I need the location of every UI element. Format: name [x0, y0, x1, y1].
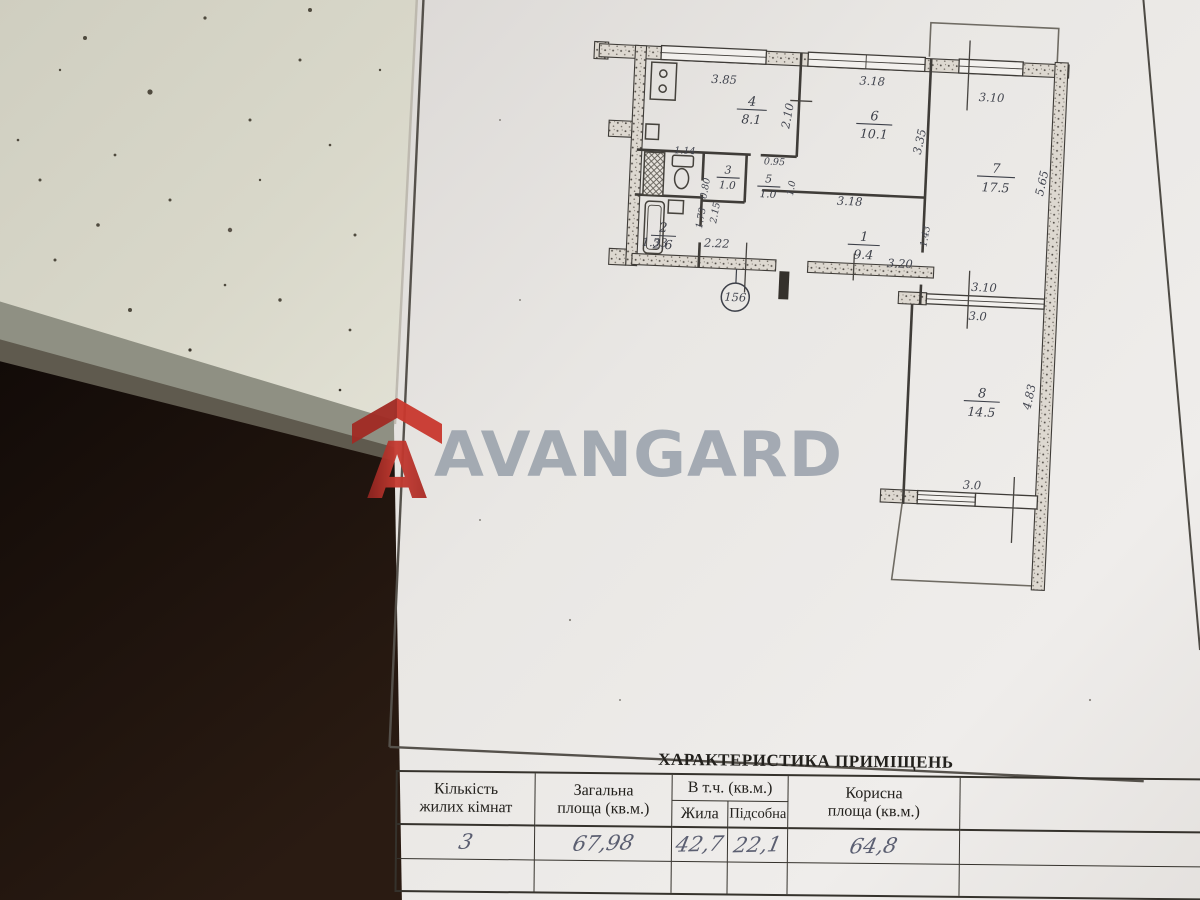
room-7-number: 7 [992, 162, 1002, 177]
dim-room8-bottom: 3.0 [963, 478, 982, 493]
watermark-brand: AVANGARD [434, 418, 892, 491]
empty-row-cell [727, 862, 787, 894]
cell-useful-value: 64,8 [788, 829, 960, 865]
room-8-number: 8 [978, 386, 987, 401]
room-pantry-number: 5 [765, 172, 773, 185]
col-header-useful: Корисна площа (кв.м.) [788, 776, 961, 831]
col-header-useful-line1: Корисна [845, 784, 902, 803]
shower-hatch [643, 152, 665, 196]
photo-scene: 4 8.1 6 10.1 7 17.5 8 14.5 1 9.4 3 1.0 5… [0, 0, 1200, 900]
col-header-incl: В т.ч. (кв.м.) [672, 775, 788, 802]
unit-number: 156 [724, 290, 747, 305]
col-header-living: Жила [672, 801, 728, 829]
col-header-utility-label: Підсобна [729, 806, 786, 823]
dim-divider-bottom: 3.0 [968, 309, 987, 324]
dim-wc-top: 1.14 [674, 145, 696, 157]
cell-living-value: 42,7 [672, 828, 728, 863]
room-kitchen-number: 4 [747, 94, 757, 109]
background [0, 0, 420, 900]
cell-rooms-value: 3 [397, 825, 535, 860]
characteristics-section: ХАРАКТЕРИСТИКА ПРИМІЩЕНЬ Кількість жилих… [394, 747, 1200, 900]
rooms-value: 3 [456, 830, 474, 854]
col-header-rooms-line1: Кількість [434, 780, 498, 799]
dim-hall-bottom: 3.20 [887, 256, 913, 271]
svg-text:A: A [367, 427, 427, 517]
col-header-total: Загальна площа (кв.м.) [535, 773, 673, 827]
dim-pantry-top: 0.95 [764, 156, 786, 168]
room-hall-area: 9.4 [853, 246, 874, 262]
dim-hall-mid: 3.18 [837, 194, 863, 209]
empty-row-cell [397, 859, 535, 891]
useful-area-value: 64,8 [847, 834, 899, 859]
col-header-living-label: Жила [681, 805, 719, 823]
room-7-area: 17.5 [981, 179, 1010, 195]
room-8-area: 14.5 [967, 404, 996, 420]
col-header-extra [960, 778, 1200, 835]
utility-area-value: 22,1 [731, 833, 783, 858]
col-header-total-line1: Загальна [574, 781, 634, 800]
dim-bath-bottom: 1.33 [642, 235, 668, 250]
empty-row-cell [671, 862, 727, 894]
dim-hall-left: 2.22 [703, 236, 730, 251]
cell-extra-value [960, 831, 1200, 869]
empty-row-cell [959, 865, 1200, 900]
room-wc-number: 3 [724, 164, 732, 177]
col-header-utility: Підсобна [728, 801, 788, 829]
characteristics-table: Кількість жилих кімнат Загальна площа (к… [394, 770, 1200, 900]
dim-divider-top: 3.10 [971, 280, 997, 295]
dim-top-room7: 3.10 [978, 90, 1004, 105]
cell-total-value: 67,98 [535, 826, 672, 861]
entrance-door-leaf [778, 271, 789, 299]
room-pantry-area: 1.0 [759, 188, 777, 201]
cell-utility-value: 22,1 [728, 828, 788, 863]
empty-row-cell [534, 860, 671, 892]
dim-top-room6: 3.18 [859, 74, 885, 89]
living-area-value: 42,7 [673, 832, 725, 857]
total-area-value: 67,98 [570, 831, 635, 856]
col-header-useful-line2: площа (кв.м.) [828, 802, 920, 821]
room-bath-number: 2 [658, 221, 668, 236]
dim-top-kitchen: 3.85 [711, 72, 737, 87]
col-header-rooms-line2: жилих кімнат [419, 798, 512, 817]
col-header-rooms: Кількість жилих кімнат [397, 772, 536, 826]
room-6-area: 10.1 [860, 126, 888, 142]
col-header-incl-label: В т.ч. (кв.м.) [688, 779, 773, 798]
room-kitchen-area: 8.1 [741, 111, 762, 127]
room-wc-area: 1.0 [719, 179, 737, 192]
room-6-number: 6 [870, 109, 879, 124]
empty-row-cell [787, 863, 959, 896]
col-header-total-line2: площа (кв.м.) [557, 799, 649, 818]
room-hall-number: 1 [860, 230, 869, 245]
